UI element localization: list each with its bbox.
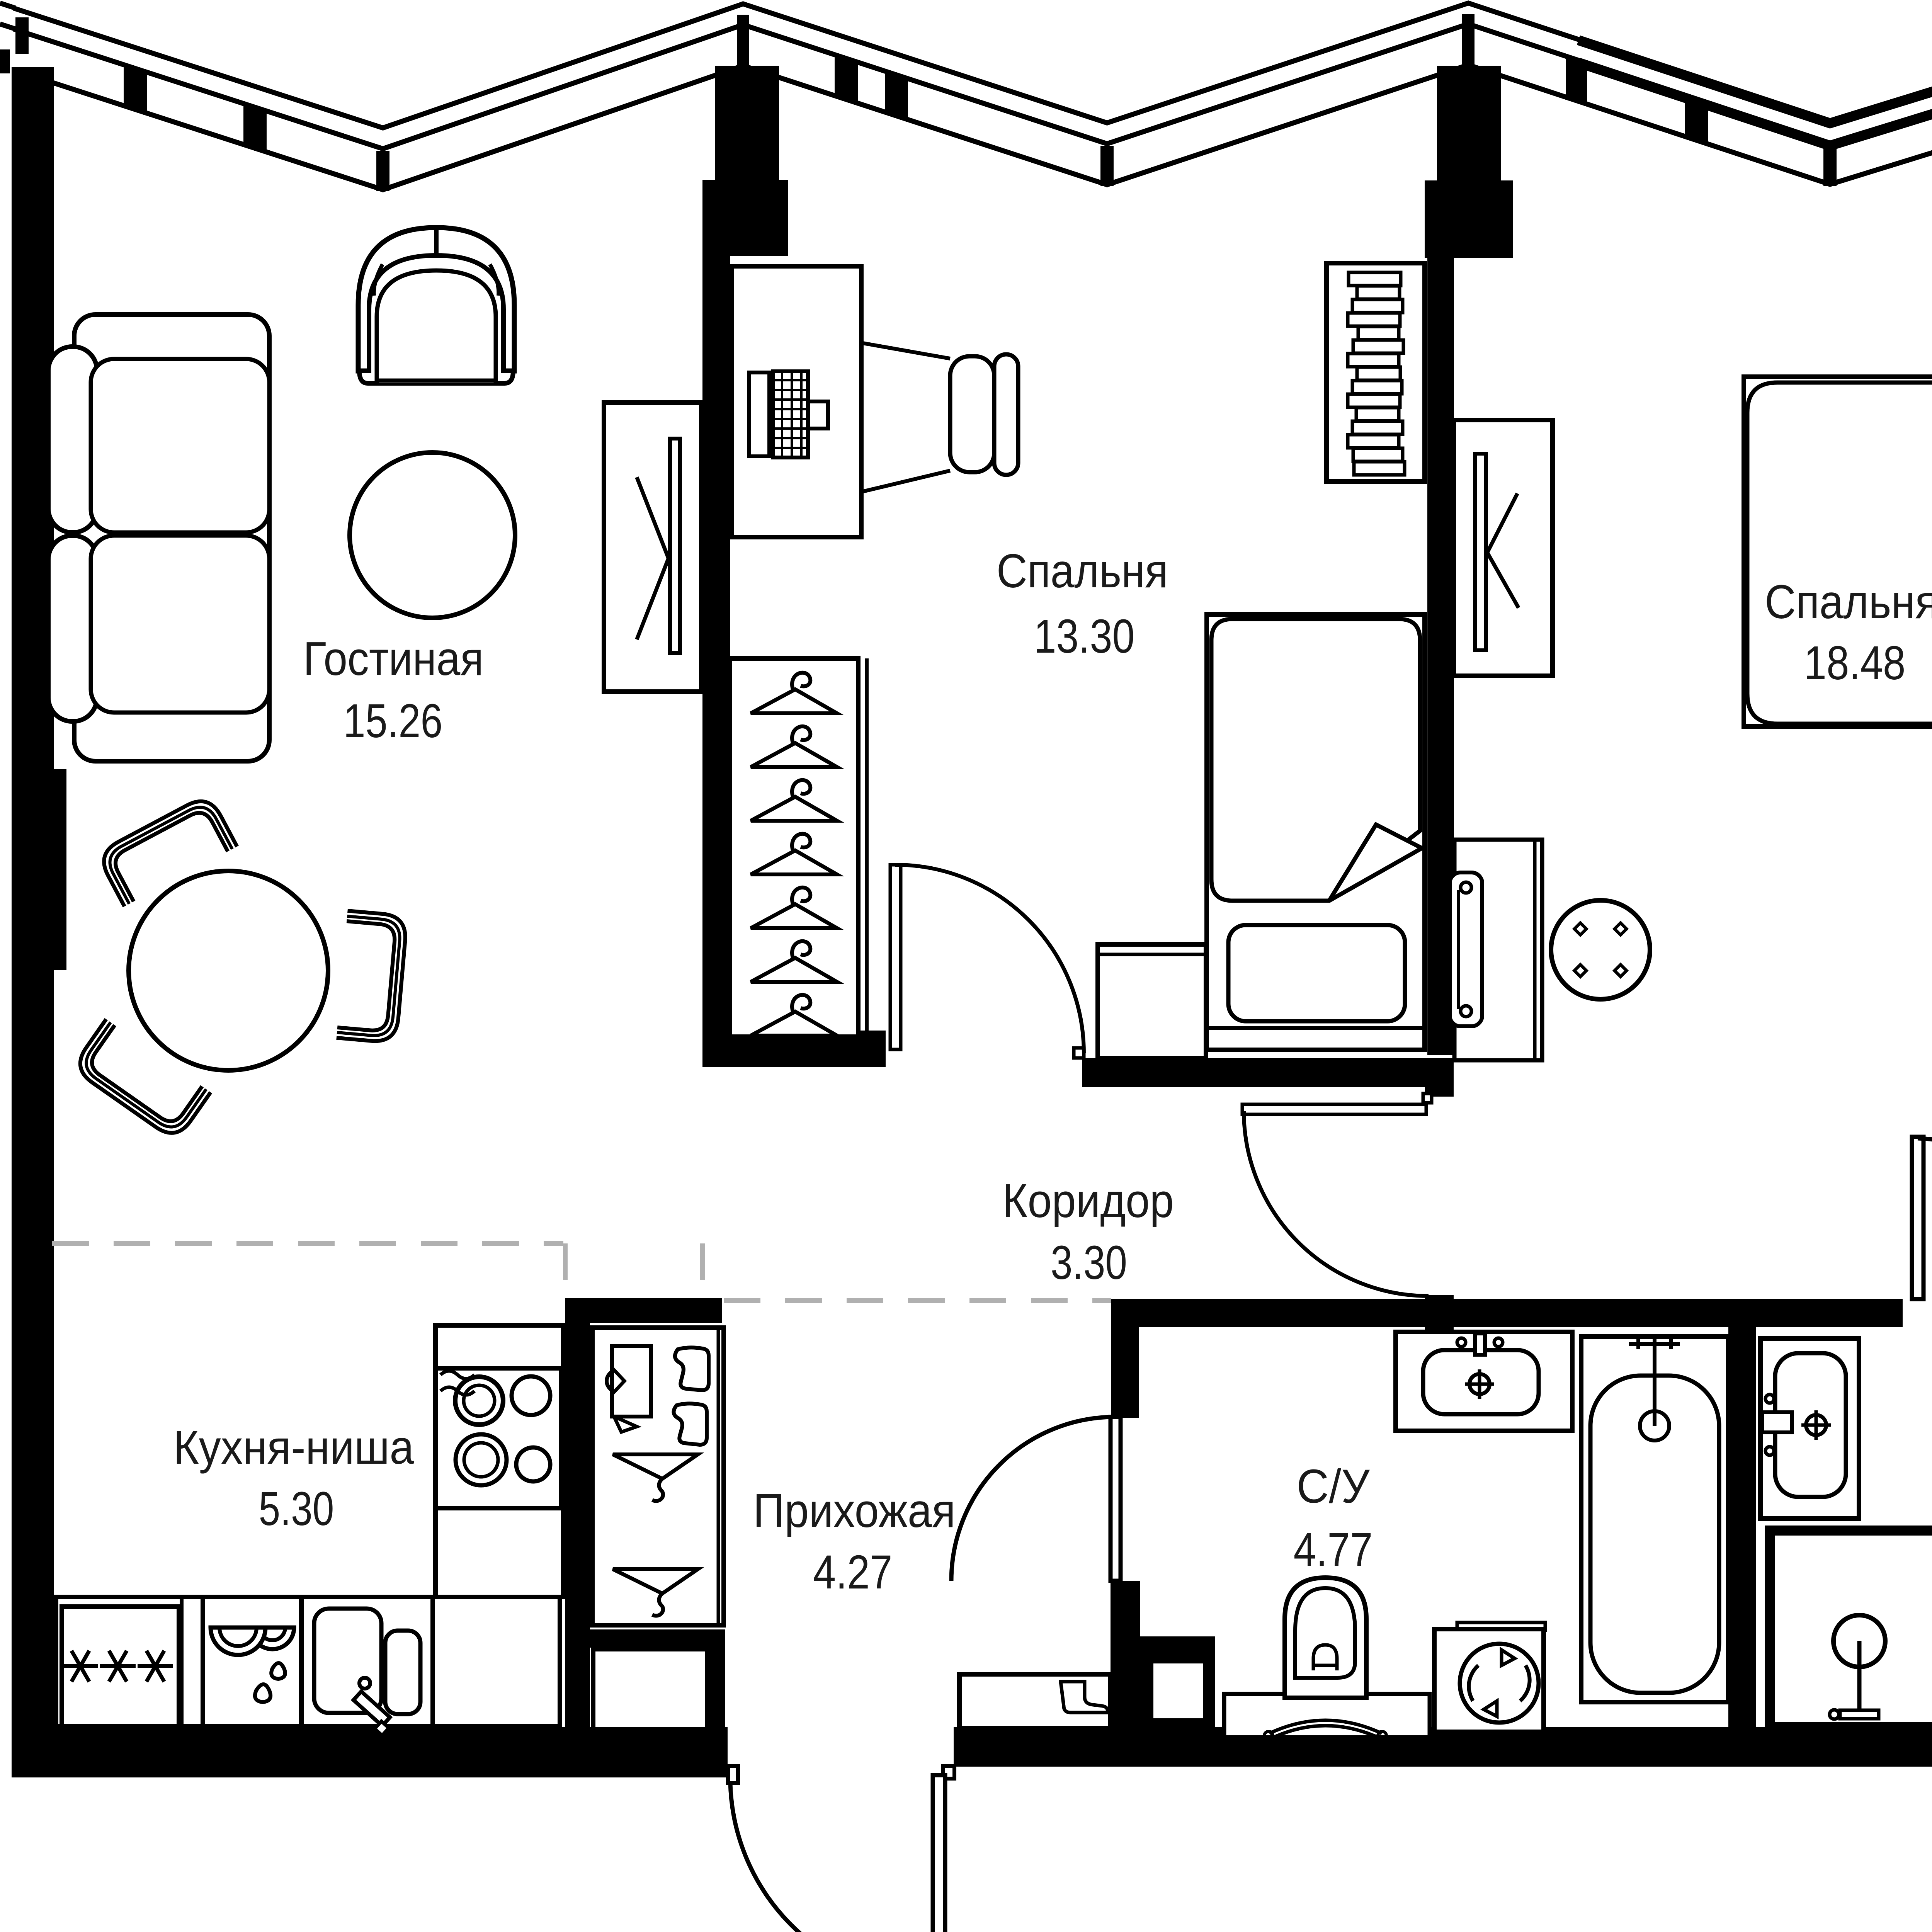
svg-text:4.27: 4.27: [813, 1546, 893, 1599]
svg-text:5.30: 5.30: [259, 1483, 334, 1536]
svg-text:15.26: 15.26: [344, 695, 443, 748]
svg-text:3.30: 3.30: [1051, 1236, 1127, 1289]
svg-text:Спальня: Спальня: [1765, 576, 1932, 629]
svg-text:4.77: 4.77: [1294, 1524, 1373, 1577]
svg-text:Кухня-ниша: Кухня-ниша: [173, 1421, 415, 1474]
svg-text:Коридор: Коридор: [1002, 1175, 1174, 1228]
svg-text:С/У: С/У: [1297, 1460, 1370, 1513]
svg-text:18.48: 18.48: [1804, 637, 1906, 690]
svg-text:Гостиная: Гостиная: [303, 633, 484, 685]
svg-text:Прихожая: Прихожая: [753, 1485, 956, 1537]
svg-text:Спальня: Спальня: [997, 545, 1168, 598]
svg-text:13.30: 13.30: [1034, 610, 1135, 663]
